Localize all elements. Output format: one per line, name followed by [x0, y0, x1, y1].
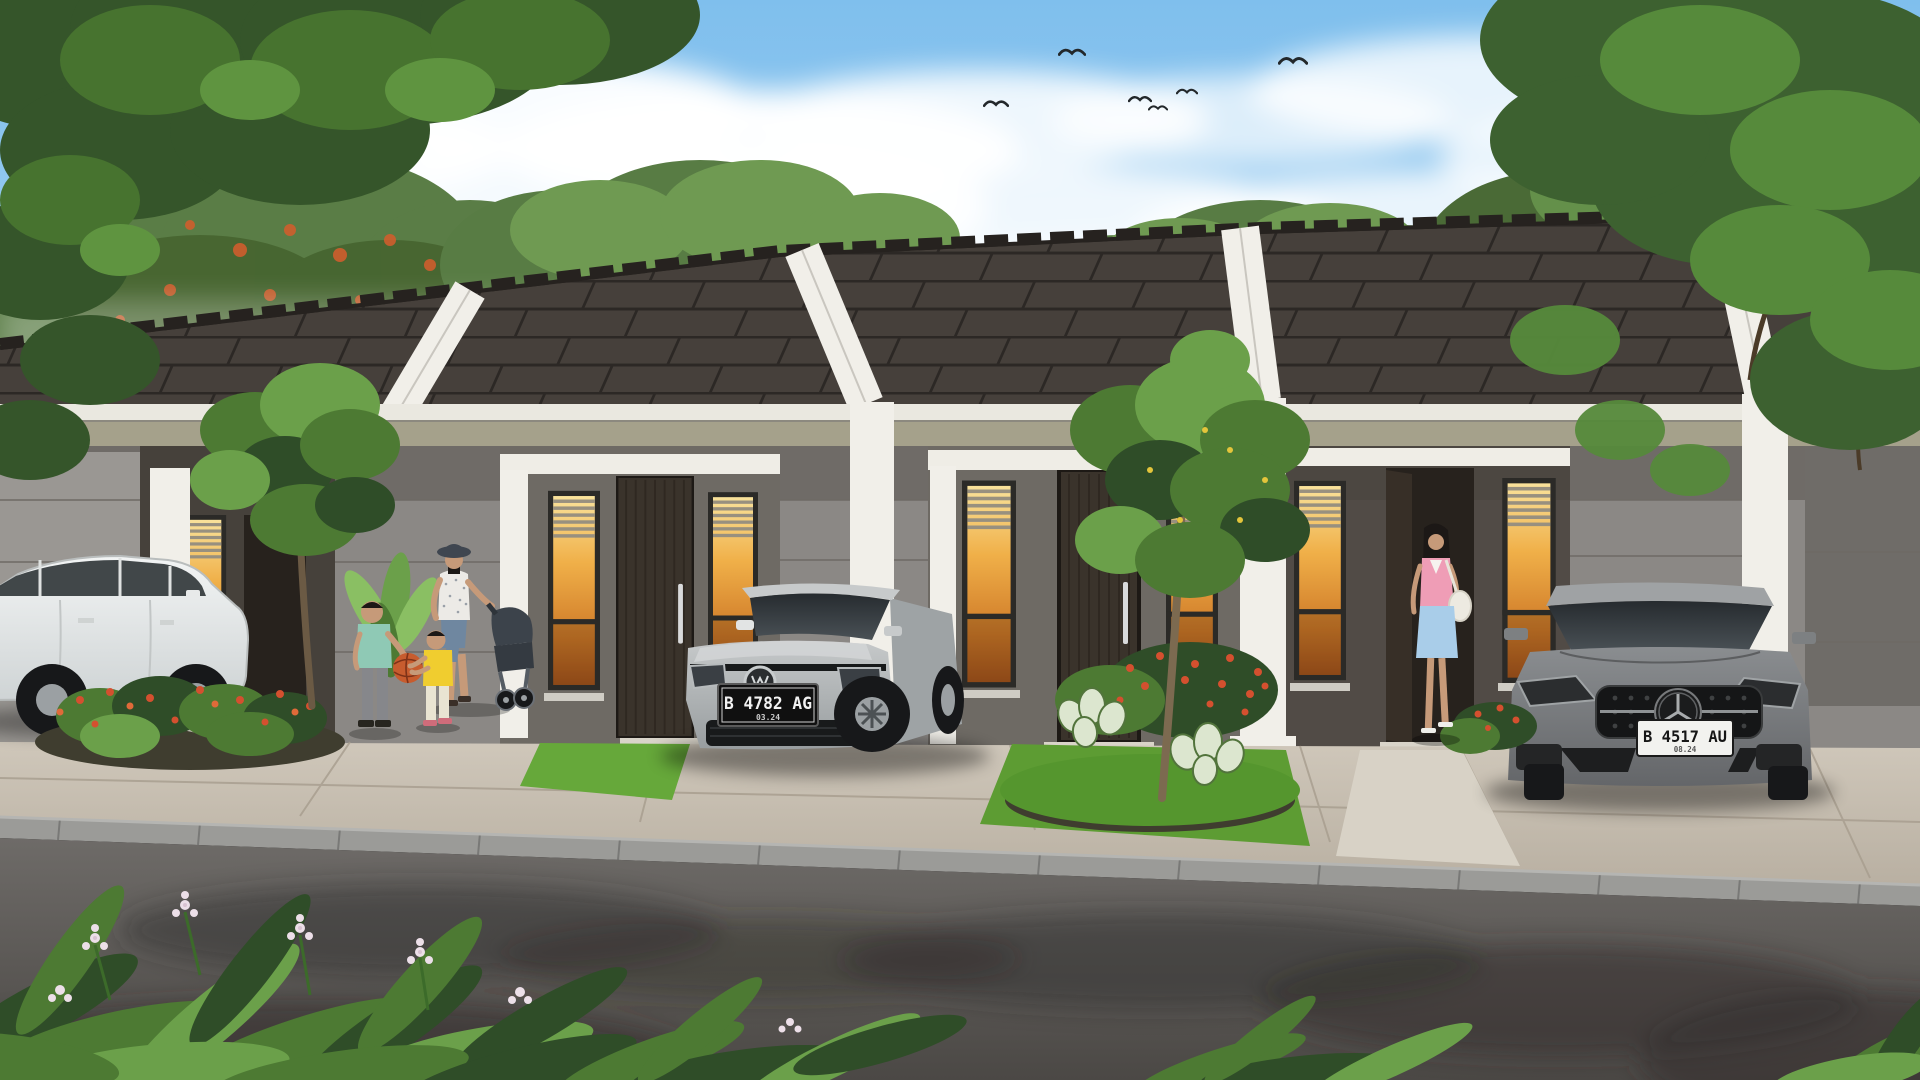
side-mirror — [1504, 628, 1528, 640]
orange-ball — [393, 653, 423, 683]
rendering-canvas: B 4782 AG 03.24 B 4517 AU 08.24 — [0, 0, 1920, 1080]
side-mirror — [736, 620, 754, 630]
windshield — [1548, 601, 1772, 652]
warm-window — [548, 491, 600, 690]
warm-window — [1294, 481, 1346, 680]
opened-door-leaf — [1386, 470, 1412, 744]
side-mirror — [884, 626, 902, 636]
entrance-beam — [500, 454, 780, 474]
warm-window — [962, 481, 1016, 688]
license-plate-expiry: 08.24 — [1674, 745, 1697, 754]
license-plate: B 4517 AU 08.24 — [1637, 720, 1733, 756]
license-plate-text: B 4517 AU — [1643, 727, 1727, 746]
license-plate-text: B 4782 AG — [724, 694, 812, 714]
license-plate: B 4782 AG 03.24 — [718, 684, 818, 726]
license-plate-expiry: 03.24 — [756, 713, 780, 722]
windshield — [750, 593, 890, 640]
side-mirror — [1792, 632, 1816, 644]
front-door — [616, 476, 693, 738]
side-mirror — [186, 590, 200, 598]
entrance-beam — [1278, 448, 1570, 466]
